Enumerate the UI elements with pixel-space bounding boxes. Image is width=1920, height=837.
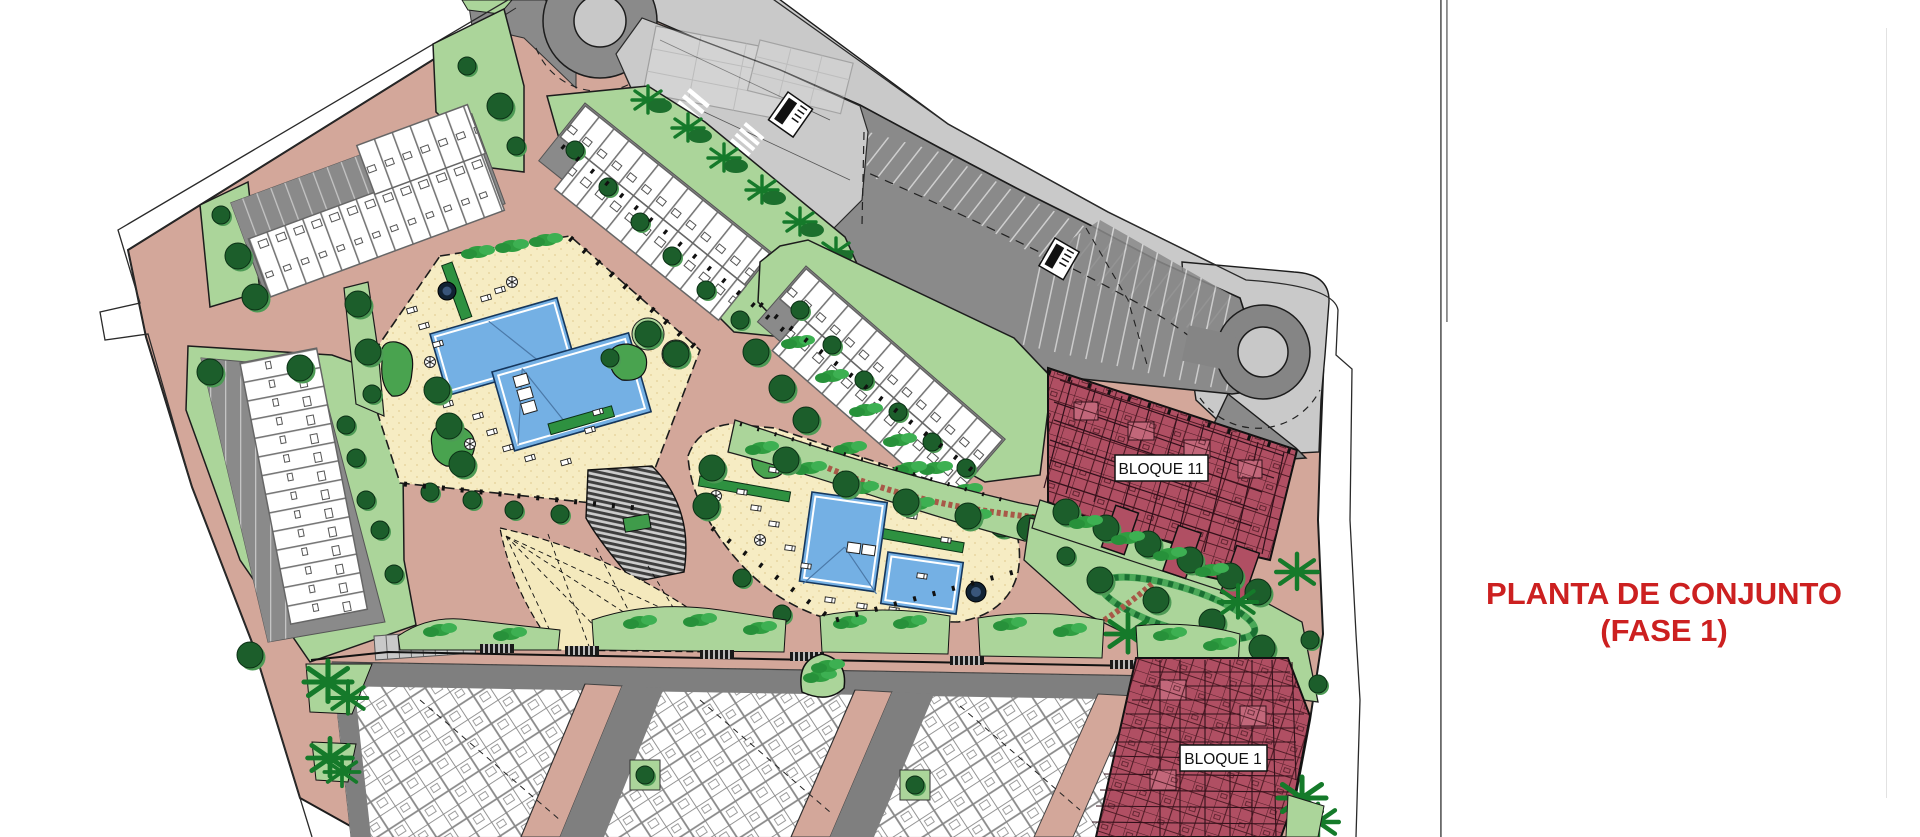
svg-text:BLOQUE 1: BLOQUE 1 (1184, 751, 1262, 768)
svg-text:BLOQUE 11: BLOQUE 11 (1118, 461, 1203, 478)
svg-text:PLANTA DE CONJUNTO: PLANTA DE CONJUNTO (1486, 576, 1842, 611)
svg-text:(FASE 1): (FASE 1) (1600, 613, 1727, 648)
